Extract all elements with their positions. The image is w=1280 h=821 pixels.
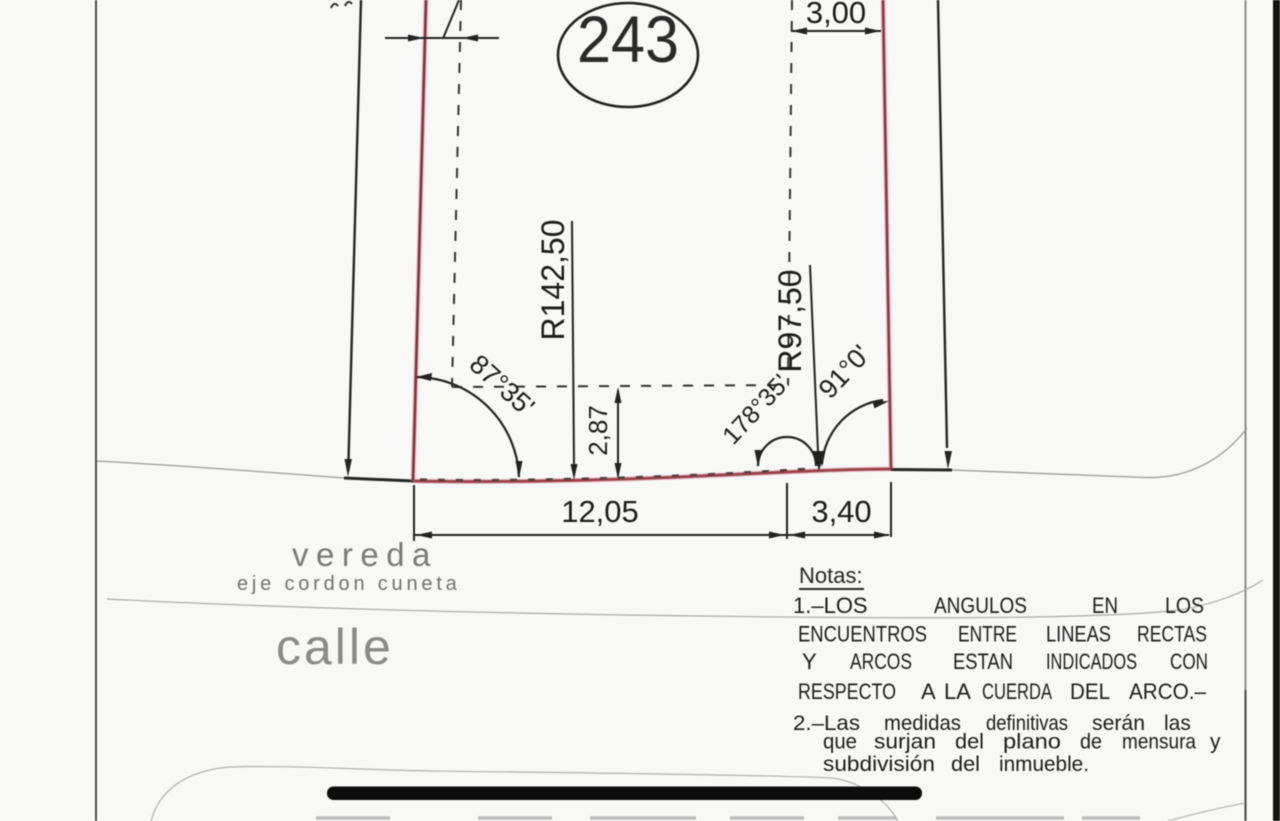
svg-text:que: que xyxy=(823,731,857,754)
svg-text:subdivisión: subdivisión xyxy=(823,753,935,776)
svg-text:del: del xyxy=(951,753,980,776)
svg-text:Y: Y xyxy=(802,649,817,674)
svg-text:3,40: 3,40 xyxy=(811,494,871,529)
svg-text:12,05: 12,05 xyxy=(561,494,639,529)
svg-text:vereda: vereda xyxy=(292,536,438,573)
svg-text:CUERDA: CUERDA xyxy=(982,679,1052,704)
svg-text:LA: LA xyxy=(944,679,971,704)
svg-text:1.–LOS: 1.–LOS xyxy=(793,593,868,618)
svg-text:ENCUENTROS: ENCUENTROS xyxy=(798,622,927,647)
svg-text:LOS: LOS xyxy=(1165,593,1204,618)
svg-text:RECTAS: RECTAS xyxy=(1137,622,1207,647)
svg-text:eje cordon cuneta: eje cordon cuneta xyxy=(237,573,461,595)
svg-text:de: de xyxy=(1080,731,1102,754)
svg-text:RESPECTO: RESPECTO xyxy=(798,679,896,704)
svg-text:DEL: DEL xyxy=(1070,679,1110,704)
svg-text:243: 243 xyxy=(577,2,679,76)
svg-text:surjan: surjan xyxy=(874,731,936,754)
svg-text:y: y xyxy=(1210,731,1221,754)
svg-text:ARCO.–: ARCO.– xyxy=(1129,679,1207,704)
svg-text:ANGULOS: ANGULOS xyxy=(934,593,1027,618)
svg-text:EN: EN xyxy=(1092,593,1118,618)
svg-text:3,00: 3,00 xyxy=(806,0,866,30)
svg-text:calle: calle xyxy=(276,619,394,675)
svg-text:CON: CON xyxy=(1170,649,1208,674)
svg-text:ENTRE: ENTRE xyxy=(958,622,1017,647)
svg-text:Notas:: Notas: xyxy=(799,563,863,588)
svg-text:del: del xyxy=(955,731,984,754)
svg-text:LINEAS: LINEAS xyxy=(1046,622,1111,647)
svg-text:ESTAN: ESTAN xyxy=(953,649,1013,674)
svg-text:mensura: mensura xyxy=(1122,731,1196,754)
svg-text:INDICADOS: INDICADOS xyxy=(1046,649,1137,674)
svg-text:ARCOS: ARCOS xyxy=(850,649,912,674)
svg-text:2,87: 2,87 xyxy=(583,405,613,456)
svg-text:plano: plano xyxy=(1003,731,1061,754)
svg-text:R142,50: R142,50 xyxy=(535,220,571,341)
svg-text:R97,50: R97,50 xyxy=(772,269,808,372)
svg-text:inmueble.: inmueble. xyxy=(999,753,1089,776)
svg-text:A: A xyxy=(921,679,936,704)
